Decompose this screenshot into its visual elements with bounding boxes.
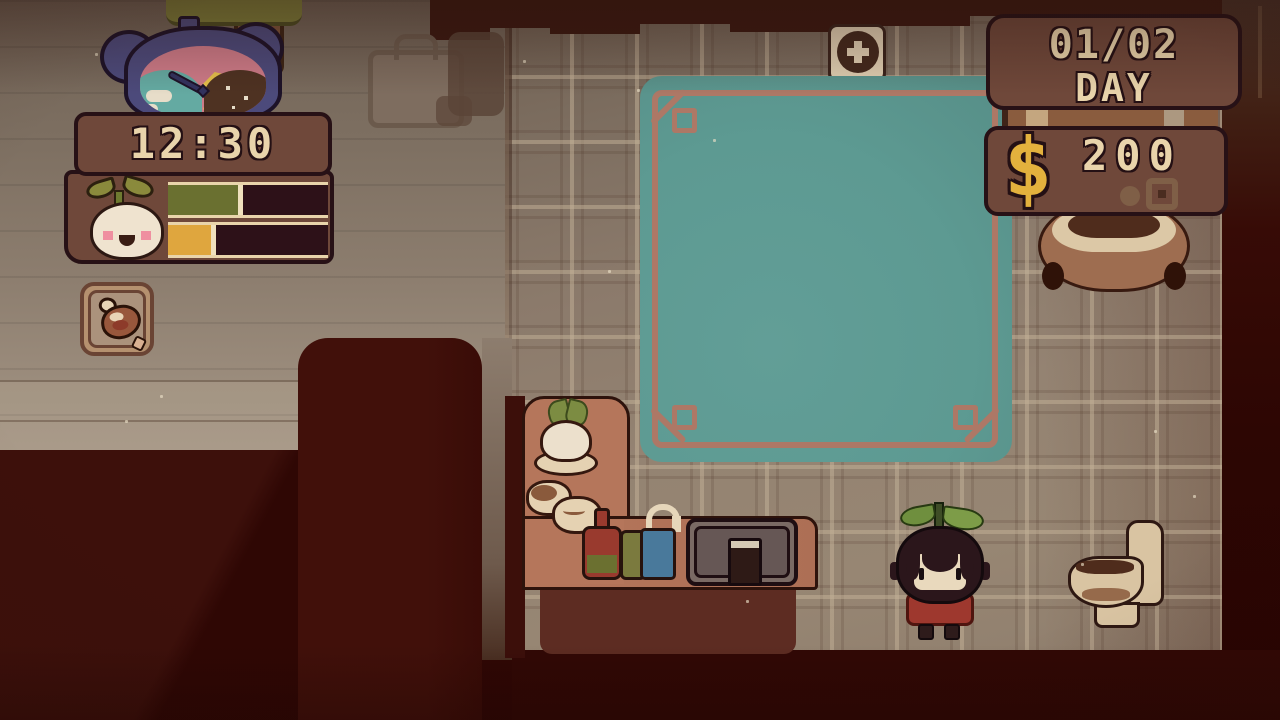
clock-face [140,46,266,118]
dust-speck [125,420,128,423]
pot-shadow-left [1042,262,1064,290]
drumstick-icon [92,294,149,351]
avatar-cheek [103,231,113,240]
star-dot [244,96,248,100]
coin-square-icon [1146,178,1178,210]
briefcase-handle [394,34,438,60]
dust-speck [523,60,526,63]
toilet[interactable] [1064,516,1168,632]
plaque-circle [837,31,879,73]
maroon-column [298,338,482,720]
player-foot [918,624,934,640]
sink-cup[interactable] [728,538,762,586]
item-slot-inner [88,290,146,348]
soap-dispenser[interactable] [640,528,676,580]
avatar-head [90,202,164,260]
player-character[interactable] [892,498,988,644]
dollar-icon: $ [1004,124,1052,212]
player-bang [960,548,974,580]
star-dot [232,106,235,109]
wall-shadow-blob-small [436,96,472,126]
player-eye [956,568,961,580]
clock-face-cloud [146,90,172,102]
toilet-shade [1082,588,1130,601]
day-label: DAY [990,68,1238,108]
dust-speck [1081,563,1084,566]
stat-bar-growth [168,182,328,218]
dust-speck [1193,495,1196,498]
avatar-leaf-icon [120,174,156,201]
money-panel: $ 200 [984,126,1228,216]
dust-speck [160,395,163,398]
door-edge-line [1258,6,1262,98]
dust-speck [746,600,749,603]
turnip-bulb-icon [540,420,592,462]
turnip-avatar [74,170,170,266]
plus-sign-icon-vertical [854,41,862,63]
day-panel: 01/02 DAY [986,14,1242,110]
bath-pool[interactable] [640,76,1012,462]
avatar-cheek [141,231,151,240]
status-panel [64,170,334,264]
stat-bar-energy-fill [168,225,216,255]
avatar-leaf-icon [84,176,118,202]
dust-speck [608,270,611,273]
stat-bar-energy [168,222,328,258]
red-bottle-label [587,555,617,573]
avatar-mouth [119,235,135,246]
time-display: 12:30 [78,116,328,172]
money-amount: 200 [1082,134,1182,178]
day-counter: 01/02 [990,22,1238,68]
dust-speck [1154,430,1157,433]
bowl-rim-line [563,507,585,515]
player-foot [944,624,960,640]
time-panel: 12:30 [74,112,332,176]
cup-rim [731,541,759,548]
coin-circle-icon [1120,186,1140,206]
toilet-seat [1076,560,1134,574]
dust-speck [713,139,716,142]
red-bottle[interactable] [582,526,622,580]
pool-corner-bl-hook [672,405,697,430]
plank-light-segment [1164,108,1184,128]
player-eye [919,568,924,580]
player-bang [906,548,920,580]
stat-bar-growth-fill [168,185,243,215]
game-screen: 12:30 [0,0,1280,720]
sprout-leaf-icon [899,503,938,529]
pool-copper-border [652,90,998,448]
counter-front [540,586,796,654]
drumstick-red-patch [112,319,129,331]
bowl-contents [531,485,557,501]
drumstick-tip [131,335,147,352]
clock-face-night-hill [204,70,266,118]
item-slot[interactable] [80,282,154,356]
pool-corner-tl-hook [672,108,697,133]
player-bang [922,546,958,572]
pot-shadow-right [1164,262,1186,290]
star-dot [226,86,230,90]
health-plaque [828,24,886,82]
coin-square-center [1158,190,1166,198]
dust-speck [637,89,640,92]
pool-corner-br-hook [953,405,978,430]
